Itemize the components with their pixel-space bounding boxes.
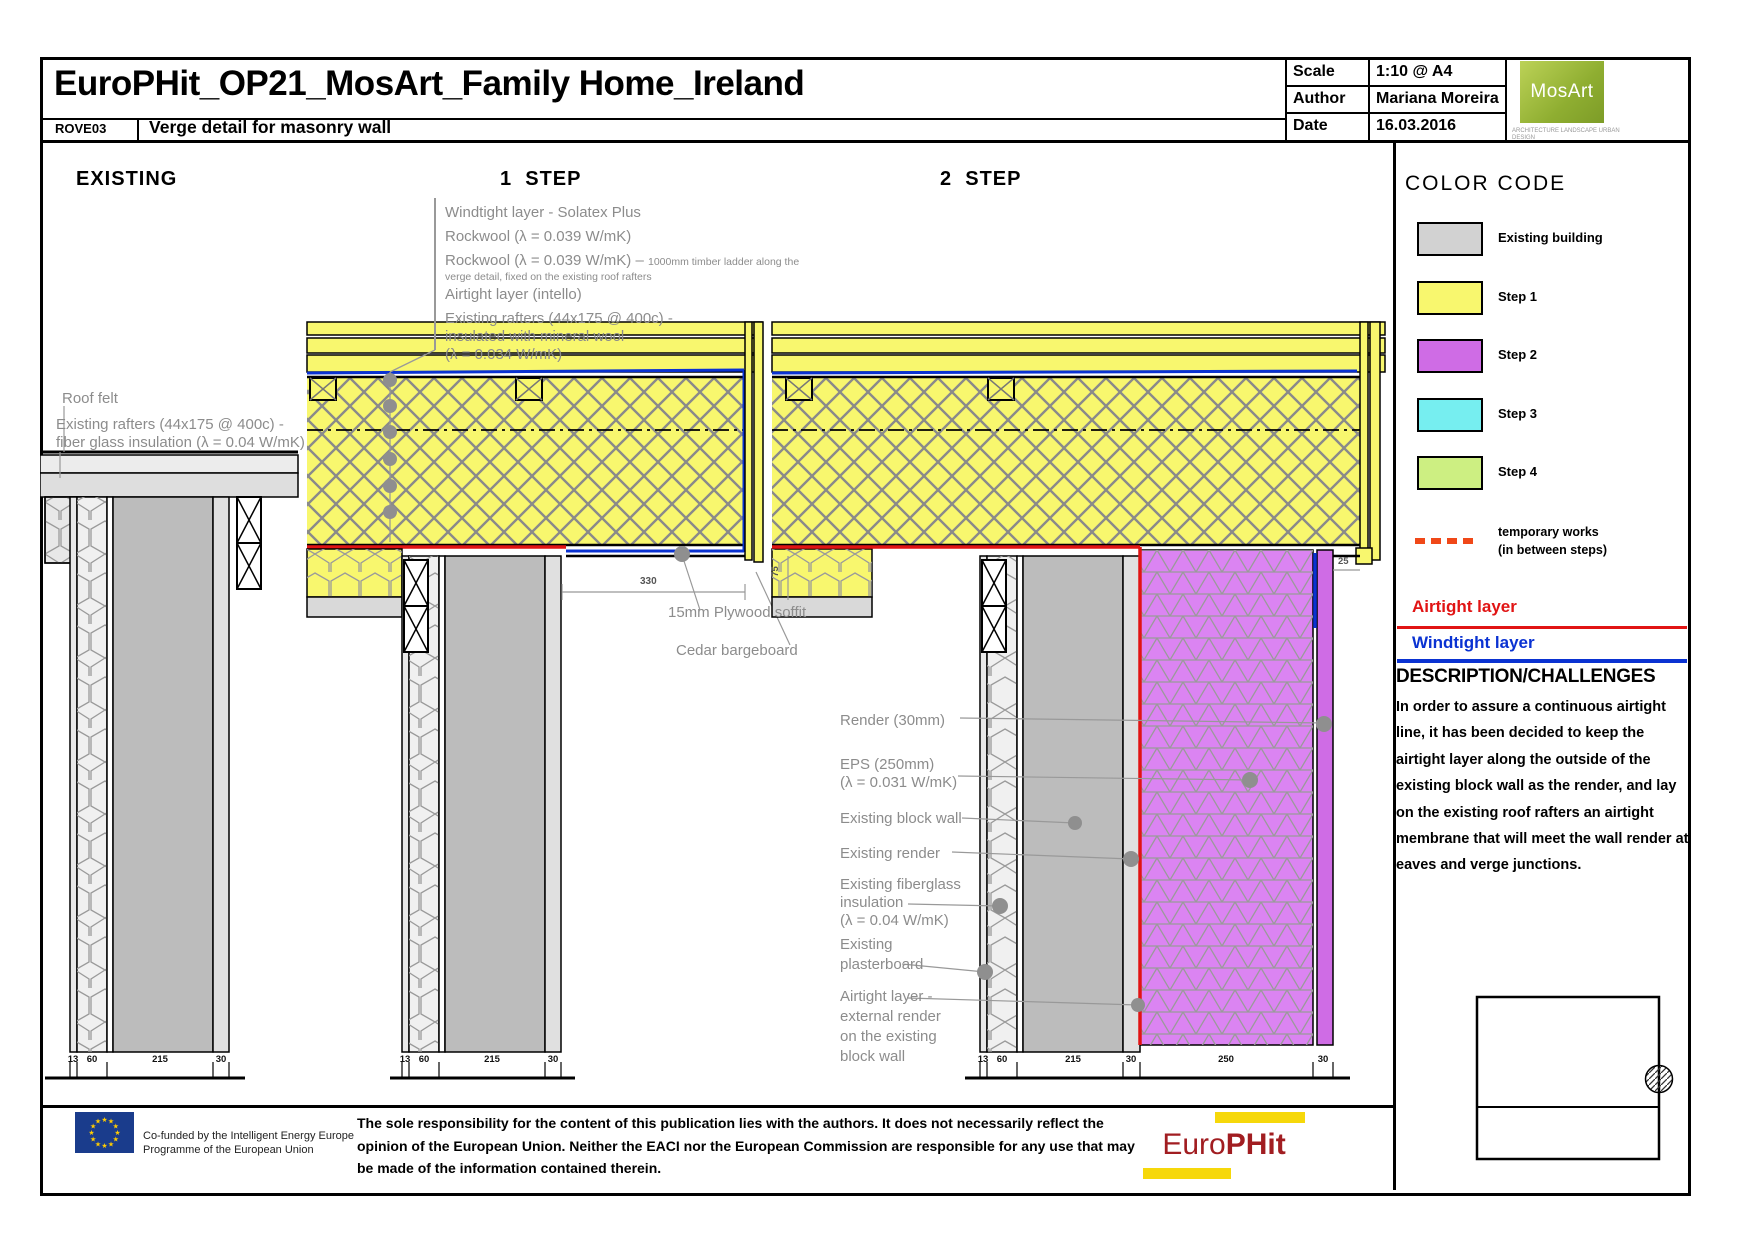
dim-step1-30: 30 — [548, 1054, 559, 1065]
europhit-yellow-bar-top — [1215, 1112, 1305, 1123]
meta-mid-line — [1368, 57, 1370, 140]
europhit-logo: EuroPHit — [1143, 1108, 1305, 1184]
europhit-wordmark: EuroPHit — [1143, 1128, 1305, 1162]
windtight-layer-rule — [1397, 659, 1687, 663]
legend-label-step2: Step 2 — [1498, 347, 1537, 362]
label-roof-felt: Roof felt — [62, 390, 118, 407]
label-airtight-intello: Airtight layer (intello) — [445, 286, 582, 303]
legend-label-step4: Step 4 — [1498, 464, 1537, 479]
label-existing-render: Existing render — [840, 845, 940, 862]
svg-text:★: ★ — [101, 1116, 107, 1124]
scale-value: 1:10 @ A4 — [1376, 63, 1452, 81]
legend-swatch-existing — [1417, 222, 1483, 256]
code-divider — [137, 118, 139, 140]
svg-text:★: ★ — [95, 1118, 101, 1126]
legend-swatch-step2 — [1417, 339, 1483, 373]
date-label: Date — [1293, 117, 1328, 135]
dim-step2-60: 60 — [997, 1054, 1008, 1065]
scale-label: Scale — [1293, 63, 1335, 81]
legend-swatch-step3 — [1417, 398, 1483, 432]
dim-existing-215: 215 — [152, 1054, 168, 1065]
description-body: In order to assure a continuous airtight… — [1396, 694, 1690, 879]
dim-existing-13: 13 — [68, 1054, 79, 1065]
dim-soffit-330: 330 — [640, 576, 657, 587]
eu-flag-icon: ★★★ ★★★ ★★★ ★★★ — [75, 1112, 134, 1153]
label-step1-rafters-2: insulated with mineral wool — [445, 328, 624, 345]
label-fiberglass-1: Existing fiberglass — [840, 876, 961, 893]
label-rockwool-note-a: 1000mm timber ladder along the — [648, 256, 799, 268]
label-step1-rafters-1: Existing rafters (44x175 @ 400c) - — [445, 310, 673, 327]
dim-step2-75: 75 — [770, 566, 781, 577]
dim-step2-25: 25 — [1338, 556, 1349, 567]
existing-wall-section — [70, 497, 261, 1052]
label-fiberglass-3: (λ = 0.04 W/mK) — [840, 912, 949, 929]
label-existing-rafters-2: fiber glass insulation (λ = 0.04 W/mK) — [56, 434, 305, 451]
meta-left-line — [1285, 57, 1287, 140]
dim-step1-215: 215 — [484, 1054, 500, 1065]
dim-step1-60: 60 — [419, 1054, 430, 1065]
label-plasterboard-1: Existing — [840, 936, 893, 953]
label-rockwool-note-b: verge detail, fixed on the existing roof… — [445, 271, 652, 283]
mosart-logo: MosArt — [1520, 61, 1604, 123]
label-plasterboard-2: plasterboard — [840, 956, 923, 973]
label-existing-rafters-1: Existing rafters (44x175 @ 400c) - — [56, 416, 284, 433]
mosart-tagline: ARCHITECTURE LANDSCAPE URBAN DESIGN — [1512, 128, 1622, 142]
legend-label-step1: Step 1 — [1498, 289, 1537, 304]
temporary-works-line — [1415, 538, 1479, 544]
legend-label-step3: Step 3 — [1498, 406, 1537, 421]
label-rockwool-1: Rockwool (λ = 0.039 W/mK) — [445, 228, 631, 245]
logo-cell-line — [1505, 57, 1507, 140]
dim-existing-60: 60 — [87, 1054, 98, 1065]
color-code-title: COLOR CODE — [1405, 172, 1566, 196]
meta-row-line-2 — [1285, 112, 1505, 114]
label-step1-rafters-3: (λ = 0.034 W/mK) — [445, 346, 562, 363]
label-eps-1: EPS (250mm) — [840, 756, 934, 773]
meta-row-line-1 — [1285, 85, 1505, 87]
drawing-title: Verge detail for masonry wall — [149, 117, 391, 138]
svg-text:★: ★ — [108, 1140, 114, 1148]
legend-swatch-step1 — [1417, 281, 1483, 315]
temporary-works-label-1: temporary works — [1498, 525, 1599, 539]
dim-step2-250: 250 — [1218, 1054, 1234, 1065]
label-rockwool-2: Rockwool (λ = 0.039 W/mK) – 1000mm timbe… — [445, 252, 799, 271]
temporary-works-label-2: (in between steps) — [1498, 543, 1607, 557]
label-airtight-external-1: Airtight layer - — [840, 988, 933, 1005]
drawing-sheet: { "header": { "title": "EuroPHit_OP21_Mo… — [0, 0, 1755, 1241]
description-title: DESCRIPTION/CHALLENGES — [1396, 666, 1655, 688]
author-label: Author — [1293, 90, 1345, 108]
eu-cofunded-text: Co-funded by the Intelligent Energy Euro… — [143, 1129, 354, 1157]
dim-step2-30a: 30 — [1126, 1054, 1137, 1065]
legend-label-existing: Existing building — [1498, 230, 1603, 245]
author-value: Mariana Moreira — [1376, 90, 1499, 108]
key-plan — [1475, 995, 1675, 1163]
label-render-30: Render (30mm) — [840, 712, 945, 729]
label-existing-block-wall: Existing block wall — [840, 810, 962, 827]
svg-text:★: ★ — [101, 1142, 107, 1150]
disclaimer-text: The sole responsibility for the content … — [357, 1112, 1135, 1180]
step1-wall-section — [402, 556, 561, 1052]
detail-location-marker-icon — [1646, 1066, 1673, 1093]
label-fiberglass-2: insulation — [840, 894, 903, 911]
eu-cofunded-line-1: Co-funded by the Intelligent Energy Euro… — [143, 1129, 354, 1143]
label-plywood-soffit: 15mm Plywood soffit — [668, 604, 806, 621]
dimension-ticks — [70, 1062, 1333, 1078]
eu-cofunded-line-2: Programme of the European Union — [143, 1143, 354, 1157]
dim-step2-13: 13 — [978, 1054, 989, 1065]
label-airtight-external-2: external render — [840, 1008, 941, 1025]
sidebar-divider — [1393, 140, 1396, 1190]
airtight-layer-rule — [1397, 626, 1687, 629]
dim-step1-13: 13 — [400, 1054, 411, 1065]
europhit-yellow-bar-bottom — [1143, 1168, 1231, 1179]
label-airtight-external-4: block wall — [840, 1048, 905, 1065]
windtight-layer-label: Windtight layer — [1412, 633, 1535, 653]
legend-swatch-step4 — [1417, 456, 1483, 490]
step2-wall-section — [980, 556, 1140, 1052]
drawing-code: ROVE03 — [55, 121, 106, 136]
mosart-logo-text: MosArt — [1530, 81, 1593, 103]
date-value: 16.03.2016 — [1376, 117, 1456, 135]
label-windtight-solatex: Windtight layer - Solatex Plus — [445, 204, 641, 221]
sheet-title: EuroPHit_OP21_MosArt_Family Home_Ireland — [54, 64, 804, 104]
dim-existing-30: 30 — [216, 1054, 227, 1065]
step2-eps-layer — [1140, 550, 1360, 1045]
label-cedar-bargeboard: Cedar bargeboard — [676, 642, 798, 659]
dim-step2-30b: 30 — [1318, 1054, 1329, 1065]
label-airtight-external-3: on the existing — [840, 1028, 937, 1045]
detail-drawing — [40, 140, 1393, 1105]
airtight-layer-label: Airtight layer — [1412, 597, 1517, 617]
dim-step2-215: 215 — [1065, 1054, 1081, 1065]
label-eps-2: (λ = 0.031 W/mK) — [840, 774, 957, 791]
